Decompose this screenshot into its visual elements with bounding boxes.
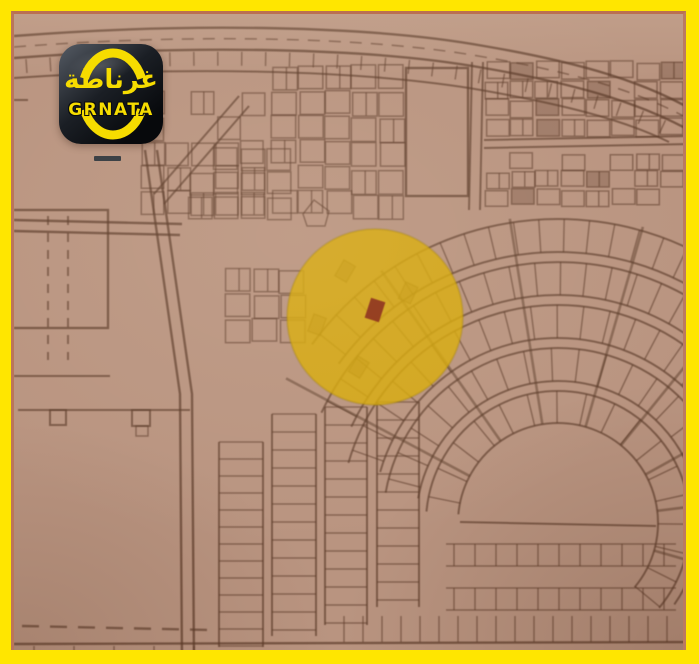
map-canvas: غرناطة GRNATA: [11, 11, 686, 650]
logo-brand-text: GRNATA: [59, 100, 163, 120]
logo-caption-dash: [94, 156, 121, 161]
logo-arabic-text: غرناطة: [59, 67, 163, 94]
grnata-logo: غرناطة GRNATA: [59, 44, 163, 144]
flyer-root: { "logo": { "arabic_name": "غرناطة", "br…: [0, 0, 699, 664]
